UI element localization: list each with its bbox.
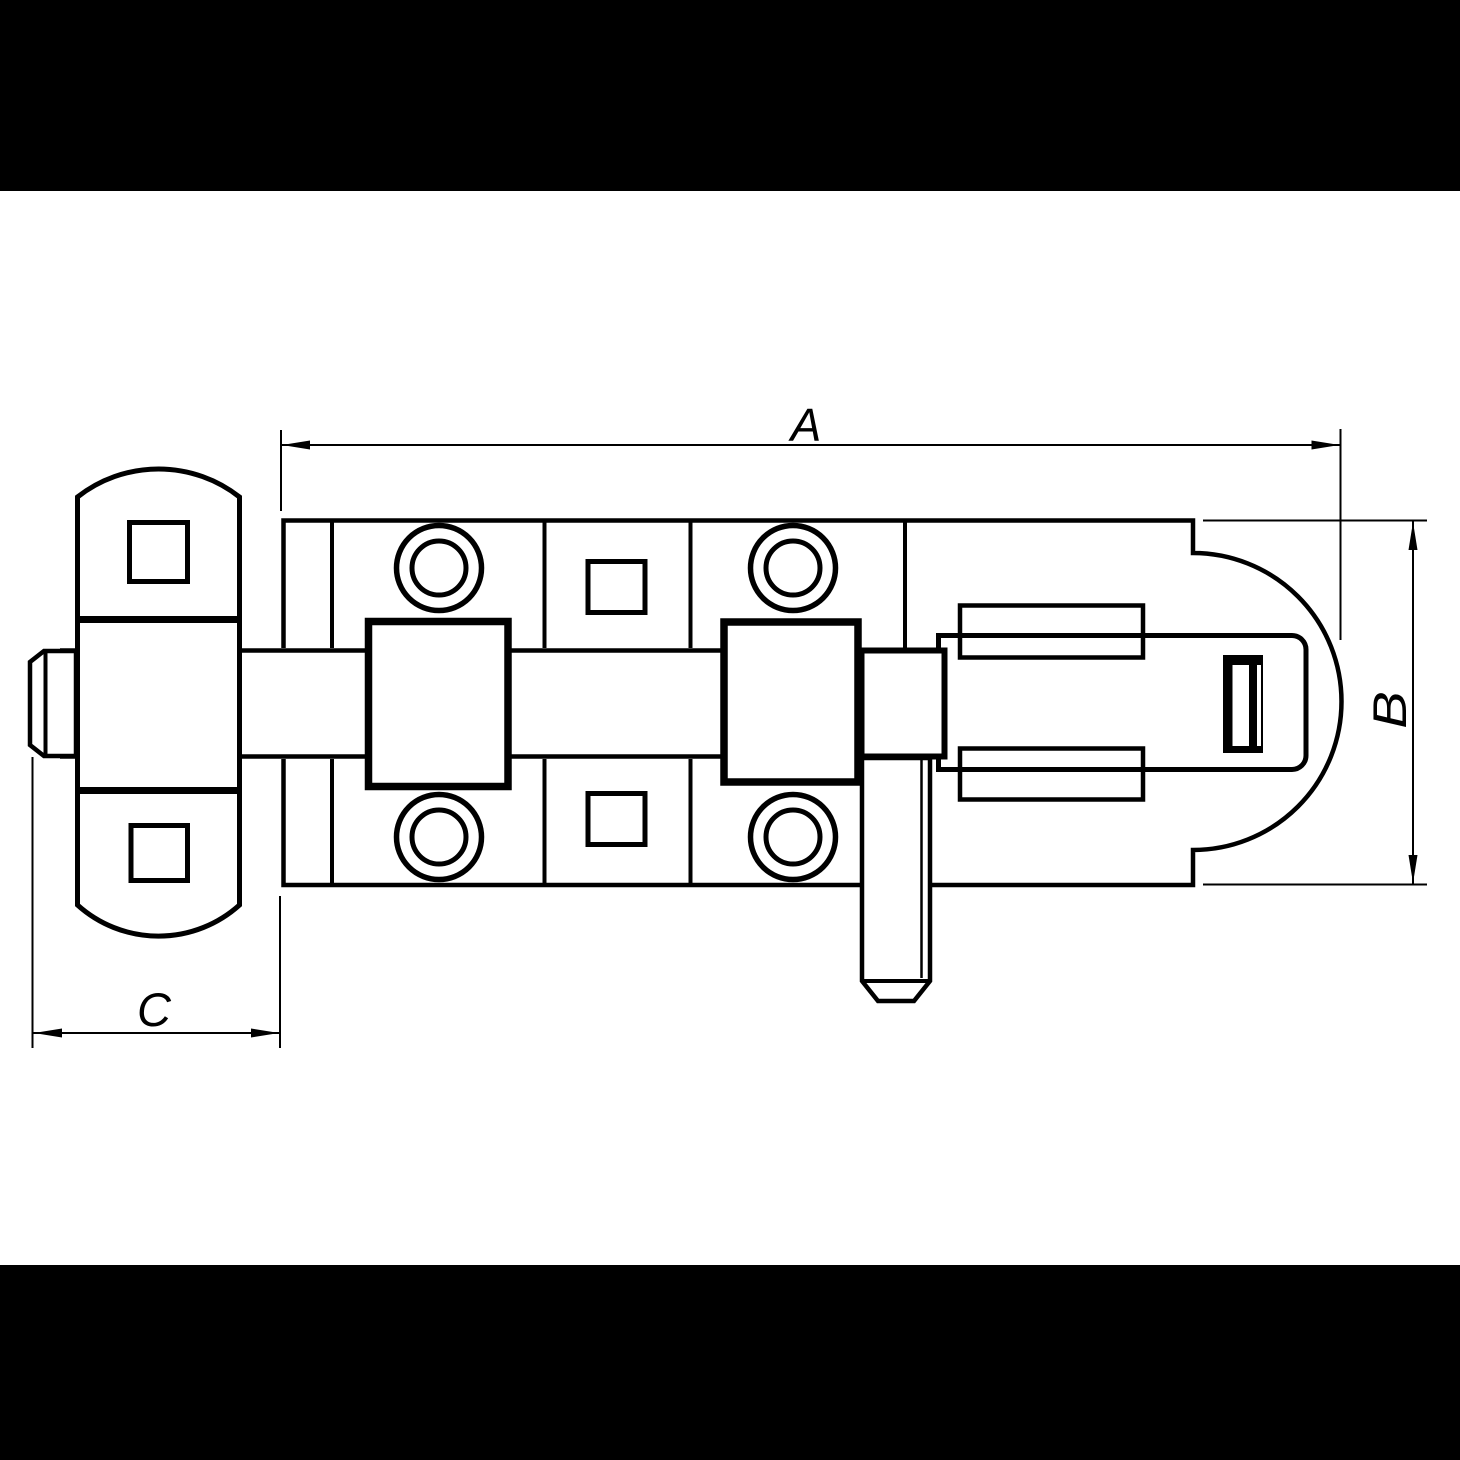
svg-text:A: A [788, 399, 822, 451]
svg-text:C: C [137, 983, 172, 1036]
svg-text:B: B [1364, 691, 1417, 729]
